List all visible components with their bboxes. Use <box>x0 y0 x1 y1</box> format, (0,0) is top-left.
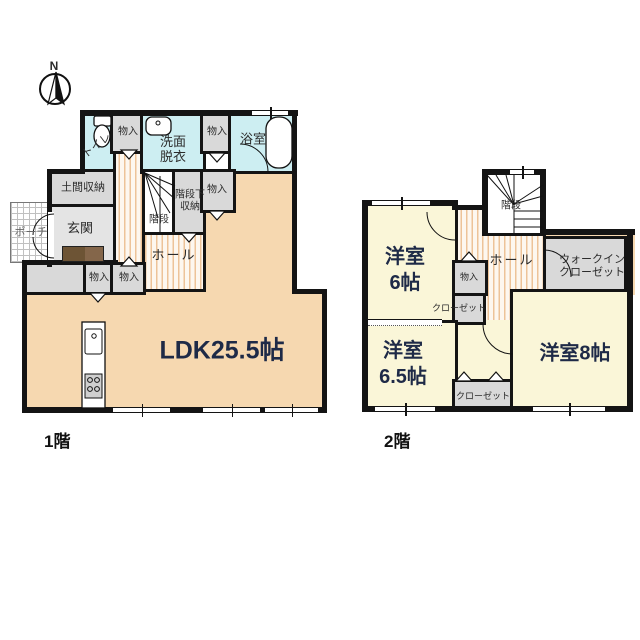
stairs-f1-label: 階段 <box>149 214 169 226</box>
room65-line1: 洋室 <box>383 340 423 362</box>
storage-label: 物入 <box>119 272 139 284</box>
room6-line1: 洋室 <box>385 246 425 268</box>
hall-f2-label: ホール <box>489 254 534 269</box>
storage-f2-label: 物入 <box>460 272 478 282</box>
room6-label: 洋室 6帖 <box>385 244 425 296</box>
bath-label: 浴室 <box>240 133 266 148</box>
understairs-label: 階段下 収納 <box>175 190 205 213</box>
washroom-line1: 洗面 <box>160 134 186 149</box>
kitchen-counter-icon <box>82 322 105 408</box>
porch-label: ポーチ <box>15 227 48 240</box>
floor-plan-canvas: N トイレ 物入 洗面 脱衣 物入 浴室 土間収納 玄関 ポーチ 階段 階段下 … <box>0 0 640 640</box>
room6-door-arc <box>427 212 455 240</box>
storage-label: 物入 <box>118 126 138 138</box>
room6-line2: 6帖 <box>389 272 420 294</box>
doma-storage-label: 土間収納 <box>61 182 105 195</box>
floor1-caption: 1階 <box>44 427 70 452</box>
washroom-line2: 脱衣 <box>160 149 186 164</box>
storage-label: 物入 <box>89 272 109 284</box>
fixtures-overlay <box>0 0 640 640</box>
closet-f2b-label: クローゼット <box>456 391 510 401</box>
bath-door-arc <box>240 144 268 172</box>
room8-door-arc <box>483 324 513 354</box>
room65-line2: 6.5帖 <box>379 366 427 388</box>
wic-label: ウォークイン クローゼット <box>559 253 625 278</box>
floor2-caption: 2階 <box>384 427 410 452</box>
closet-f2a-label: クローゼット <box>432 303 486 313</box>
washroom-label: 洗面 脱衣 <box>160 135 186 165</box>
compass-n-label: N <box>50 60 59 74</box>
room8-label: 洋室8帖 <box>539 343 610 366</box>
storage-label: 物入 <box>207 126 227 138</box>
wic-line2: クローゼット <box>559 266 625 278</box>
bathtub-icon <box>266 117 292 168</box>
compass-icon <box>40 72 70 104</box>
understairs-line2: 収納 <box>180 201 200 212</box>
entrance-label: 玄関 <box>67 222 93 237</box>
stairs-f2-label: 階段 <box>501 200 521 212</box>
hall-f1-label: ホール <box>151 249 196 264</box>
understairs-line1: 階段下 <box>175 190 205 201</box>
room65-label: 洋室 6.5帖 <box>379 338 427 390</box>
ldk-size-label: LDK25.5帖 <box>159 337 284 366</box>
sink-icon <box>146 117 171 135</box>
wic-line1: ウォークイン <box>559 253 625 265</box>
storage-label: 物入 <box>207 184 227 196</box>
